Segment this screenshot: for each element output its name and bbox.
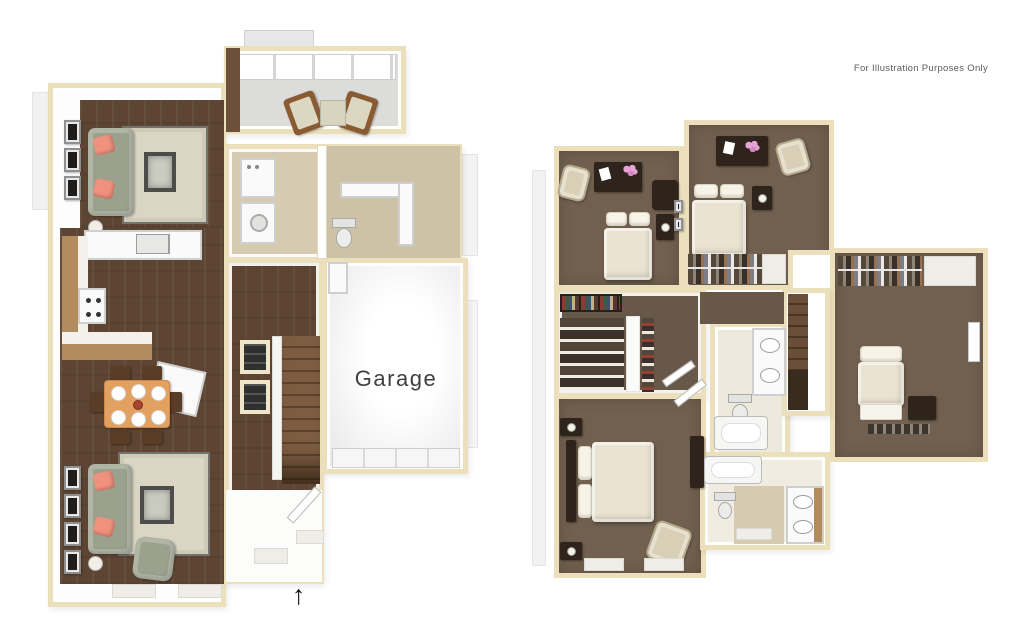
chair-cushion (289, 96, 319, 130)
nightstand (560, 542, 582, 560)
bed (858, 362, 904, 406)
plate (131, 384, 146, 399)
lamp (661, 223, 670, 232)
closet-divider (626, 316, 640, 392)
exterior-wall-strip (532, 170, 546, 566)
master-bed (592, 442, 654, 522)
striped-rug (868, 424, 930, 434)
sunroom-skylight (236, 54, 396, 80)
double-vanity (752, 328, 786, 396)
dining-chair (142, 366, 162, 380)
bed-pillow (694, 184, 718, 198)
sink (760, 368, 780, 383)
window-sill-mat (644, 558, 684, 571)
dining-chair (110, 430, 130, 444)
bed-pillow (578, 484, 592, 518)
sink (793, 520, 813, 534)
garage-step (328, 262, 348, 294)
bed-pillow (720, 184, 744, 198)
window-sill-mat (584, 558, 624, 571)
nightstand (752, 186, 772, 210)
sofa-pillow (92, 178, 115, 199)
garage-door (332, 448, 460, 468)
entry-arrow-icon: ↑ (292, 582, 316, 612)
closet-rod (688, 267, 762, 269)
wall-art-frame (64, 522, 81, 546)
living-coffee-table (144, 152, 176, 192)
closet-hanging-clothes (688, 254, 762, 284)
bed-pillow (629, 212, 650, 226)
sunroom-table (320, 100, 346, 126)
family-armchair (132, 536, 177, 583)
toilet-tank (728, 394, 752, 403)
bed-pillow (860, 346, 902, 362)
powder-toilet-tank (332, 218, 356, 228)
sunroom-wood-strip (226, 48, 240, 132)
dryer (240, 202, 276, 244)
laundry-bath-wall (318, 146, 326, 258)
table-centerpiece (133, 400, 143, 410)
sink (793, 495, 813, 509)
stair-railing (272, 336, 282, 480)
window-sill-mat (112, 584, 156, 598)
storage-chest (908, 396, 936, 420)
plate (151, 410, 166, 425)
dining-chair (142, 430, 162, 444)
wall-art-frame (64, 550, 81, 574)
wall-art-frame (64, 176, 81, 200)
hall-closet-shelf (240, 340, 270, 374)
stairwell-steps (788, 294, 808, 370)
kitchen-counter-bottom (62, 332, 152, 360)
bathtub (714, 416, 768, 450)
plate (151, 386, 166, 401)
desk-flowers (744, 140, 760, 153)
closet-rod (838, 269, 922, 271)
disclaimer-text: For Illustration Purposes Only (852, 63, 988, 77)
toilet-tank (714, 492, 736, 501)
nightstand (560, 418, 582, 436)
staircase (282, 336, 320, 484)
wall-art-frame (64, 494, 81, 518)
wall-art-frame (64, 148, 81, 172)
side-table (88, 556, 103, 571)
dresser (690, 436, 704, 488)
bed (604, 228, 652, 280)
dining-table (104, 380, 170, 428)
stove-burners (86, 298, 91, 303)
nightstand (656, 214, 674, 240)
bed (692, 200, 746, 256)
bed-folded-blanket (860, 404, 902, 420)
master-headboard (566, 440, 576, 522)
window (968, 322, 980, 362)
sink (760, 338, 780, 353)
plate (131, 412, 146, 427)
toilet-bowl (718, 502, 732, 519)
stove (78, 288, 106, 324)
bathtub-basin (711, 462, 755, 478)
closet-shelf (924, 256, 976, 286)
bed-pillow (606, 212, 627, 226)
right-deck (462, 154, 478, 256)
bathtub-basin (721, 423, 761, 443)
wall-art-frame (64, 120, 81, 144)
wall-art-frame (64, 466, 81, 490)
vanity (786, 486, 824, 544)
entry-mat (296, 530, 324, 544)
closet-shelf (762, 254, 786, 284)
hall-closet-shelf (240, 380, 270, 414)
lamp (758, 194, 767, 203)
closet-hanging-rod (642, 318, 654, 392)
powder-toilet-bowl (336, 228, 352, 248)
chair-cushion (343, 96, 373, 129)
closet-hanging-clothes (838, 256, 922, 286)
dining-chair (110, 366, 130, 380)
plate (111, 410, 126, 425)
family-coffee-table (140, 486, 174, 524)
powder-vanity-return (398, 182, 414, 246)
bed-pillow (578, 446, 592, 480)
upper-hallway (700, 292, 784, 324)
bath-mat (736, 528, 772, 540)
lamp (567, 423, 576, 432)
wall-art-frame (674, 218, 683, 231)
desk-flowers (622, 164, 638, 177)
lamp (567, 547, 576, 556)
washer (240, 158, 276, 198)
wall-art-frame (674, 200, 683, 213)
window-sill-mat (178, 584, 222, 598)
dining-chair (168, 392, 182, 412)
closet-shelving (560, 318, 624, 390)
bookshelf (560, 294, 622, 312)
entry-mat (254, 548, 288, 564)
left-porch (32, 92, 49, 210)
washer-dials (247, 165, 251, 169)
garage-label: Garage (348, 366, 444, 392)
dryer-door (250, 214, 268, 232)
bathtub (704, 456, 762, 484)
dining-chair (90, 392, 104, 412)
plate (111, 386, 126, 401)
floor-plan-canvas: For Illustration Purposes Only (0, 0, 1024, 640)
stairwell-opening (788, 370, 808, 410)
kitchen-sink (136, 234, 170, 254)
